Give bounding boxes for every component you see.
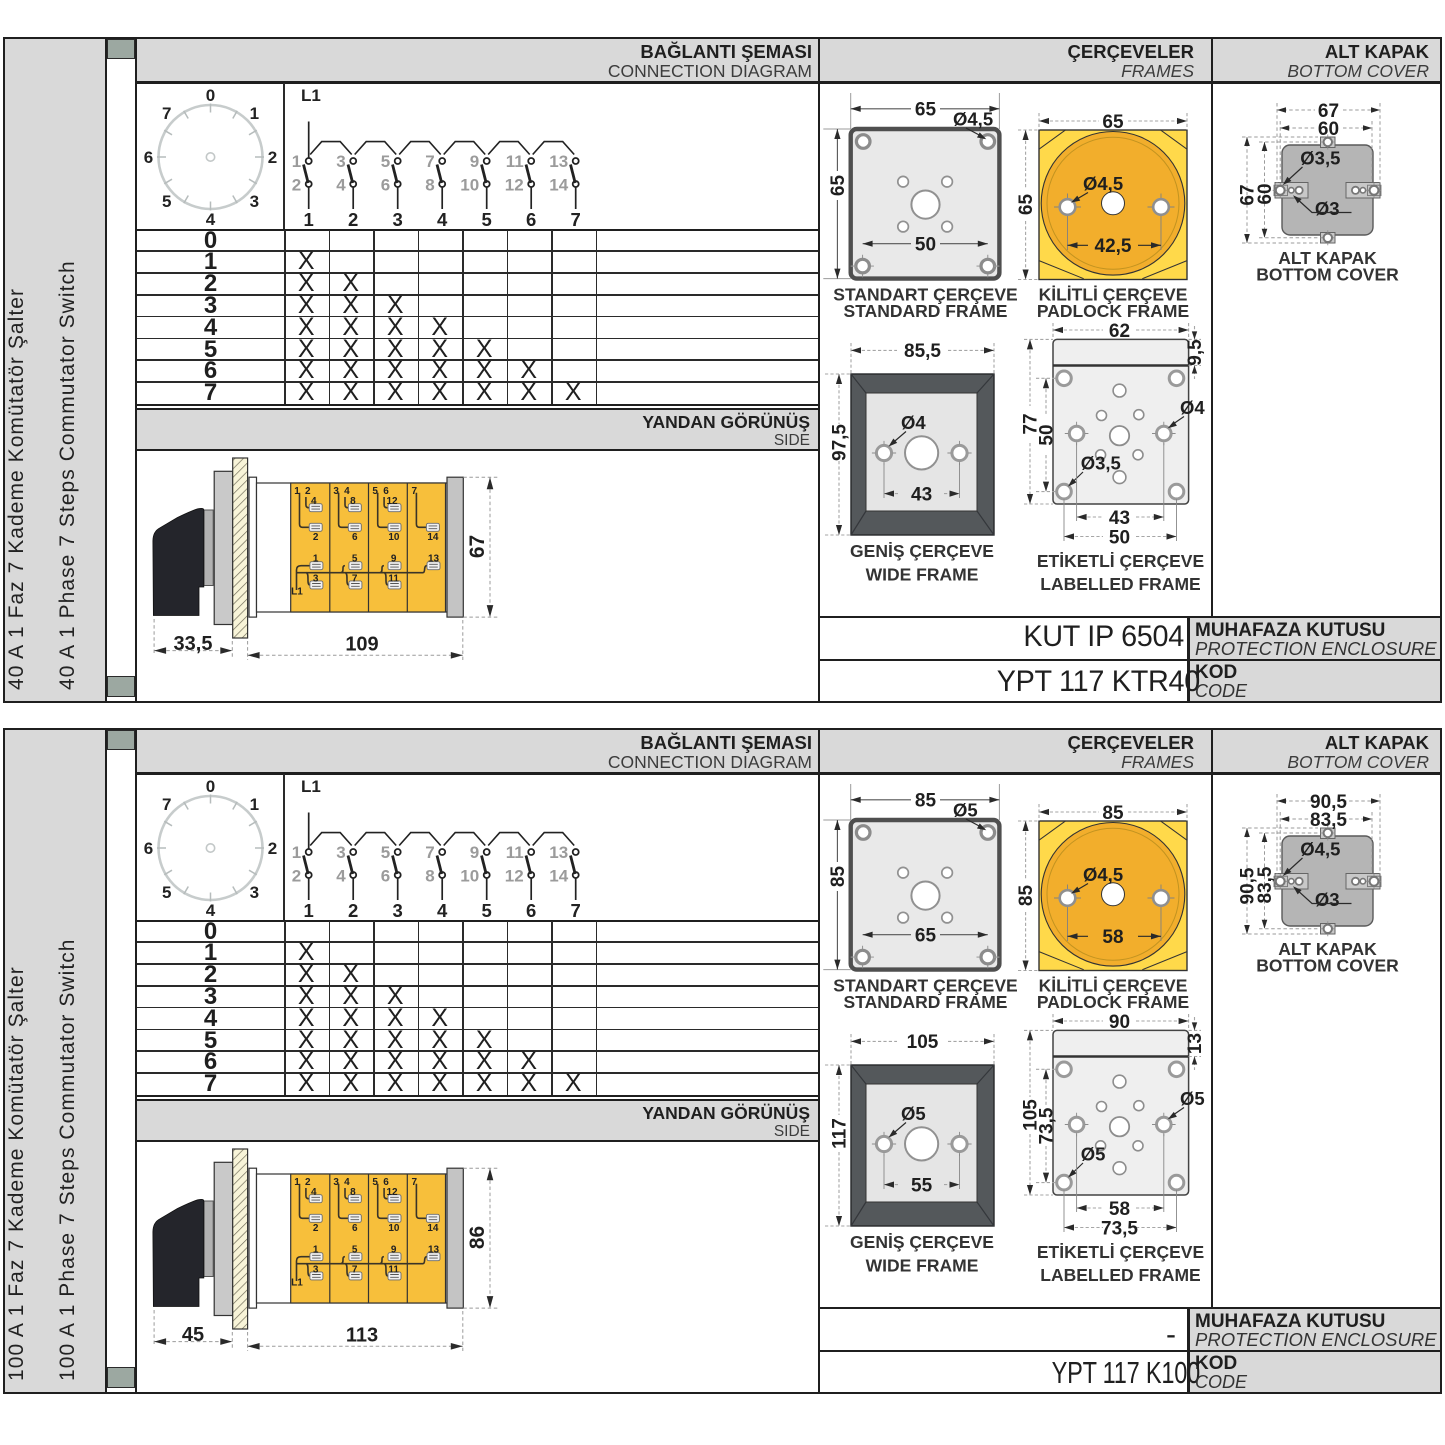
svg-text:65: 65 [1016,194,1037,216]
svg-text:BOTTOM COVER: BOTTOM COVER [1256,264,1399,284]
svg-text:8: 8 [425,176,434,195]
svg-text:113: 113 [346,1325,378,1347]
svg-text:45: 45 [182,1324,204,1346]
svg-text:2: 2 [313,532,319,543]
svg-text:14: 14 [549,867,568,886]
svg-text:11: 11 [506,152,524,171]
svg-text:4: 4 [206,901,216,919]
svg-text:Ø4: Ø4 [1180,397,1205,418]
svg-text:2: 2 [348,900,358,919]
svg-text:7: 7 [352,574,358,585]
svg-text:5: 5 [381,152,390,171]
svg-text:3: 3 [250,192,259,211]
svg-text:Ø5: Ø5 [953,800,978,821]
svg-text:5: 5 [482,209,492,228]
svg-text:5: 5 [482,900,492,919]
svg-text:90: 90 [1109,1012,1130,1033]
svg-text:2: 2 [268,148,277,167]
svg-text:Ø3: Ø3 [1315,889,1340,910]
svg-text:109: 109 [345,634,378,656]
svg-text:85: 85 [828,866,849,888]
svg-text:LABELLED FRAME: LABELLED FRAME [1040,574,1200,594]
svg-text:58: 58 [1109,1199,1130,1220]
svg-text:3: 3 [336,152,345,171]
svg-text:2: 2 [292,867,301,886]
svg-text:13: 13 [1185,1033,1206,1054]
svg-text:Ø4,5: Ø4,5 [1300,839,1340,860]
svg-text:7: 7 [571,209,581,228]
svg-text:42,5: 42,5 [1095,236,1132,257]
svg-text:5: 5 [352,1244,358,1255]
svg-text:43: 43 [1109,508,1130,529]
svg-text:GENİŞ ÇERÇEVE: GENİŞ ÇERÇEVE [850,541,994,561]
svg-text:5: 5 [162,883,171,902]
svg-text:9: 9 [391,553,397,564]
svg-text:65: 65 [915,926,937,947]
svg-text:14: 14 [427,1223,439,1234]
svg-text:60: 60 [1255,183,1276,204]
svg-text:117: 117 [830,1118,851,1149]
svg-text:50: 50 [1037,424,1058,445]
svg-text:0: 0 [206,86,215,105]
svg-text:12: 12 [505,867,524,886]
svg-text:13: 13 [549,843,568,862]
svg-text:GENİŞ ÇERÇEVE: GENİŞ ÇERÇEVE [850,1232,994,1252]
svg-text:3: 3 [313,574,319,585]
svg-text:14: 14 [549,176,568,195]
svg-text:4: 4 [311,496,317,507]
svg-text:Ø4: Ø4 [901,412,926,433]
svg-text:1: 1 [304,209,314,228]
svg-text:11: 11 [388,1265,399,1276]
svg-text:85,5: 85,5 [904,341,941,362]
svg-text:33,5: 33,5 [174,633,213,655]
svg-text:85: 85 [915,791,937,812]
svg-text:Ø4,5: Ø4,5 [1083,864,1123,885]
svg-text:9: 9 [391,1244,397,1255]
svg-text:55: 55 [911,1175,933,1196]
svg-text:2: 2 [268,839,277,858]
svg-text:8: 8 [425,867,434,886]
svg-text:STANDARD FRAME: STANDARD FRAME [844,992,1008,1012]
svg-text:4: 4 [336,867,346,886]
svg-text:L1: L1 [301,777,321,796]
svg-text:Ø5: Ø5 [1081,1144,1106,1165]
svg-text:1: 1 [294,486,300,497]
svg-text:4: 4 [437,900,448,919]
svg-text:8: 8 [350,496,356,507]
svg-text:9,5: 9,5 [1185,339,1206,366]
svg-text:12: 12 [386,1187,398,1198]
svg-text:7: 7 [425,843,434,862]
svg-text:5: 5 [372,1177,378,1188]
svg-text:Ø5: Ø5 [1180,1088,1205,1109]
svg-text:3: 3 [313,1265,319,1276]
svg-text:86: 86 [466,1226,489,1249]
svg-text:6: 6 [144,148,153,167]
svg-text:62: 62 [1109,321,1130,342]
svg-text:6: 6 [381,867,390,886]
svg-text:73,5: 73,5 [1101,1218,1138,1239]
svg-text:60: 60 [1318,119,1339,140]
svg-text:7: 7 [571,900,581,919]
svg-text:65: 65 [828,175,849,197]
svg-text:6: 6 [144,839,153,858]
svg-text:3: 3 [393,209,403,228]
svg-text:Ø5: Ø5 [901,1103,926,1124]
svg-text:2: 2 [292,176,301,195]
svg-text:12: 12 [386,496,398,507]
svg-text:PADLOCK FRAME: PADLOCK FRAME [1037,992,1189,1012]
svg-text:83,5: 83,5 [1255,866,1276,903]
svg-text:105: 105 [907,1032,939,1053]
svg-text:WIDE FRAME: WIDE FRAME [866,564,979,584]
svg-text:8: 8 [350,1187,356,1198]
svg-text:9: 9 [470,152,479,171]
svg-text:11: 11 [388,574,399,585]
svg-text:6: 6 [352,532,358,543]
svg-text:7: 7 [162,795,171,814]
svg-text:2: 2 [348,209,358,228]
svg-text:4: 4 [311,1187,317,1198]
svg-text:13: 13 [428,553,440,564]
svg-text:1: 1 [313,553,319,564]
svg-text:10: 10 [388,1223,400,1234]
svg-text:3: 3 [393,900,403,919]
svg-text:50: 50 [1109,527,1130,548]
svg-text:ETİKETLİ ÇERÇEVE: ETİKETLİ ÇERÇEVE [1037,551,1204,571]
svg-text:50: 50 [915,235,936,256]
svg-text:4: 4 [437,209,448,228]
svg-text:1: 1 [250,795,259,814]
svg-text:10: 10 [388,532,400,543]
svg-text:L1: L1 [291,587,303,598]
svg-text:L1: L1 [301,86,321,105]
svg-text:5: 5 [372,486,378,497]
svg-text:Ø3: Ø3 [1315,198,1340,219]
svg-text:13: 13 [428,1244,440,1255]
svg-text:2: 2 [313,1223,319,1234]
svg-text:6: 6 [526,209,536,228]
svg-text:5: 5 [352,553,358,564]
svg-text:5: 5 [381,843,390,862]
svg-text:7: 7 [352,1265,358,1276]
svg-text:43: 43 [911,484,932,505]
svg-text:BOTTOM COVER: BOTTOM COVER [1256,955,1399,975]
svg-text:14: 14 [427,532,439,543]
svg-text:6: 6 [526,900,536,919]
svg-text:Ø3,5: Ø3,5 [1081,453,1121,474]
svg-text:7: 7 [412,486,418,497]
svg-text:6: 6 [352,1223,358,1234]
svg-text:1: 1 [250,104,259,123]
svg-text:65: 65 [915,100,937,121]
svg-text:13: 13 [549,152,568,171]
svg-text:ETİKETLİ ÇERÇEVE: ETİKETLİ ÇERÇEVE [1037,1242,1204,1262]
svg-text:1: 1 [294,1177,300,1188]
svg-text:67: 67 [466,535,489,558]
svg-text:58: 58 [1102,927,1123,948]
svg-text:12: 12 [505,176,524,195]
svg-text:3: 3 [336,843,345,862]
svg-text:6: 6 [381,176,390,195]
svg-text:7: 7 [162,104,171,123]
svg-text:3: 3 [250,883,259,902]
svg-text:Ø4,5: Ø4,5 [1083,173,1123,194]
svg-text:0: 0 [206,777,215,796]
svg-text:85: 85 [1102,803,1124,824]
svg-text:STANDARD FRAME: STANDARD FRAME [844,301,1008,321]
svg-text:PADLOCK FRAME: PADLOCK FRAME [1037,301,1189,321]
svg-text:1: 1 [313,1244,319,1255]
svg-text:73,5: 73,5 [1037,1107,1058,1144]
svg-text:97,5: 97,5 [830,424,851,461]
svg-text:L1: L1 [291,1278,303,1289]
svg-text:7: 7 [412,1177,418,1188]
svg-text:65: 65 [1102,112,1124,133]
svg-text:10: 10 [460,176,479,195]
svg-text:LABELLED FRAME: LABELLED FRAME [1040,1265,1200,1285]
svg-text:7: 7 [425,152,434,171]
svg-text:Ø4,5: Ø4,5 [953,109,993,130]
svg-text:11: 11 [506,843,524,862]
svg-text:9: 9 [470,843,479,862]
svg-text:1: 1 [304,900,314,919]
svg-text:10: 10 [460,867,479,886]
svg-text:Ø3,5: Ø3,5 [1300,148,1340,169]
svg-text:3: 3 [333,1177,339,1188]
svg-text:1: 1 [292,843,301,862]
svg-text:WIDE FRAME: WIDE FRAME [866,1255,979,1275]
svg-text:85: 85 [1016,885,1037,907]
svg-text:3: 3 [333,486,339,497]
svg-text:4: 4 [336,176,346,195]
svg-text:5: 5 [162,192,171,211]
svg-text:4: 4 [206,210,216,228]
svg-text:1: 1 [292,152,301,171]
